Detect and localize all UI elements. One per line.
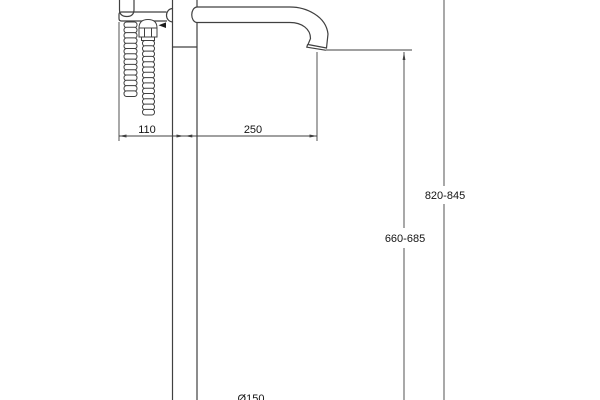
dimension-label-overall-height: 820-845 xyxy=(425,190,465,202)
lever-handle xyxy=(120,0,135,17)
connector-hex-nut xyxy=(139,28,157,37)
dimension-label-spout-outlet-height: 660-685 xyxy=(385,233,425,245)
hose-right-connector xyxy=(139,20,157,41)
dimension-label-base-diameter: Ø150 xyxy=(238,393,265,400)
dimension-label-hose-offset: 110 xyxy=(138,124,156,136)
dimension-label-spout-reach: 250 xyxy=(244,124,262,136)
faucet-outline xyxy=(119,0,328,400)
shower-hoses xyxy=(124,20,157,116)
connector-dome xyxy=(139,20,157,29)
hose-right-coil xyxy=(143,41,155,116)
spout xyxy=(192,7,328,50)
technical-drawing: 110 250 820-845 660-685 Ø150 xyxy=(0,0,600,400)
riser-pipe xyxy=(173,0,198,400)
dimension-lines xyxy=(119,0,444,400)
hose-left-coil xyxy=(124,22,137,97)
flow-marker-icon xyxy=(159,22,167,28)
dimension-labels: 110 250 820-845 660-685 Ø150 xyxy=(138,124,465,400)
connector-collar xyxy=(142,37,155,41)
faucet-dimension-diagram: 110 250 820-845 660-685 Ø150 xyxy=(0,0,600,400)
body-collar xyxy=(167,9,173,23)
dimension-arrowheads xyxy=(119,52,405,138)
